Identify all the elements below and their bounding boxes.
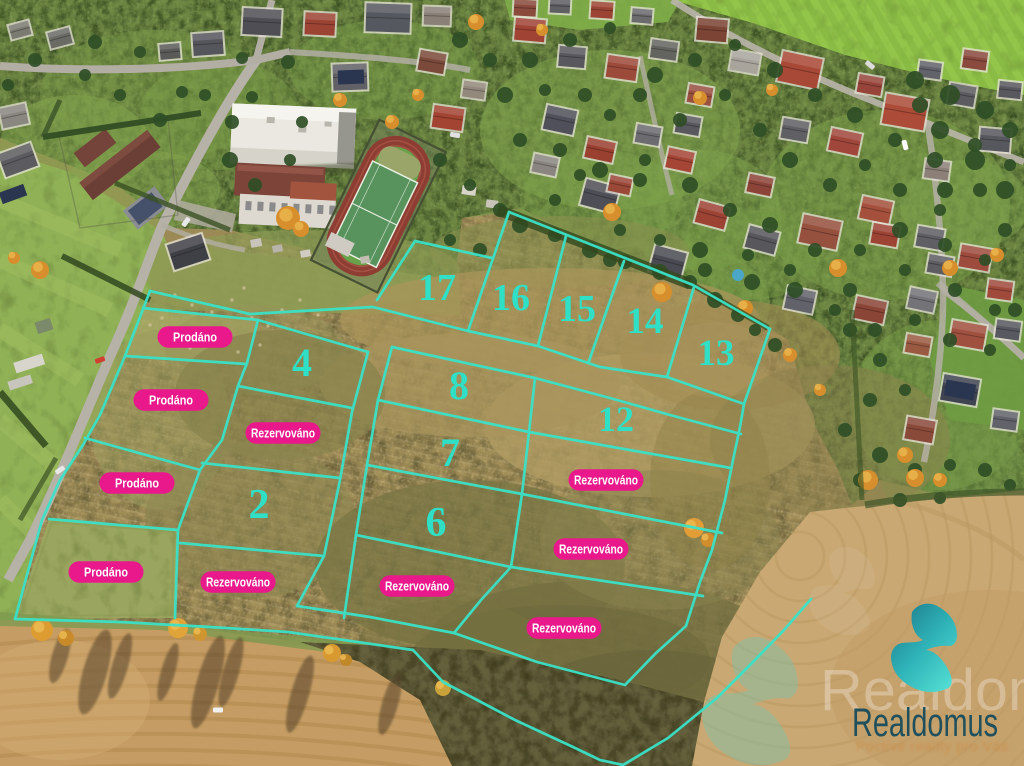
svg-text:Prodáno: Prodáno [84,565,128,580]
svg-text:Rezervováno: Rezervováno [574,473,638,488]
svg-text:2: 2 [249,482,270,528]
svg-text:16: 16 [492,277,530,319]
svg-text:13: 13 [698,333,735,374]
svg-text:12: 12 [598,399,634,439]
svg-text:Rezervováno: Rezervováno [206,575,270,590]
svg-text:15: 15 [558,288,596,330]
svg-text:Rezervováno: Rezervováno [385,579,449,594]
svg-text:7: 7 [440,430,460,475]
svg-text:Prodáno: Prodáno [173,330,217,345]
svg-text:Prodáno: Prodáno [149,393,193,408]
svg-text:17: 17 [418,267,456,309]
svg-text:8: 8 [449,363,469,408]
svg-text:Rezervováno: Rezervováno [559,542,623,557]
svg-text:6: 6 [426,500,447,546]
svg-text:Poctivé reality pro Vás: Poctivé reality pro Vás [856,738,1008,754]
svg-text:Rezervováno: Rezervováno [532,621,596,636]
svg-text:Rezervováno: Rezervováno [251,426,315,441]
svg-text:4: 4 [292,340,312,385]
svg-text:14: 14 [627,301,664,342]
svg-text:Prodáno: Prodáno [115,476,159,491]
